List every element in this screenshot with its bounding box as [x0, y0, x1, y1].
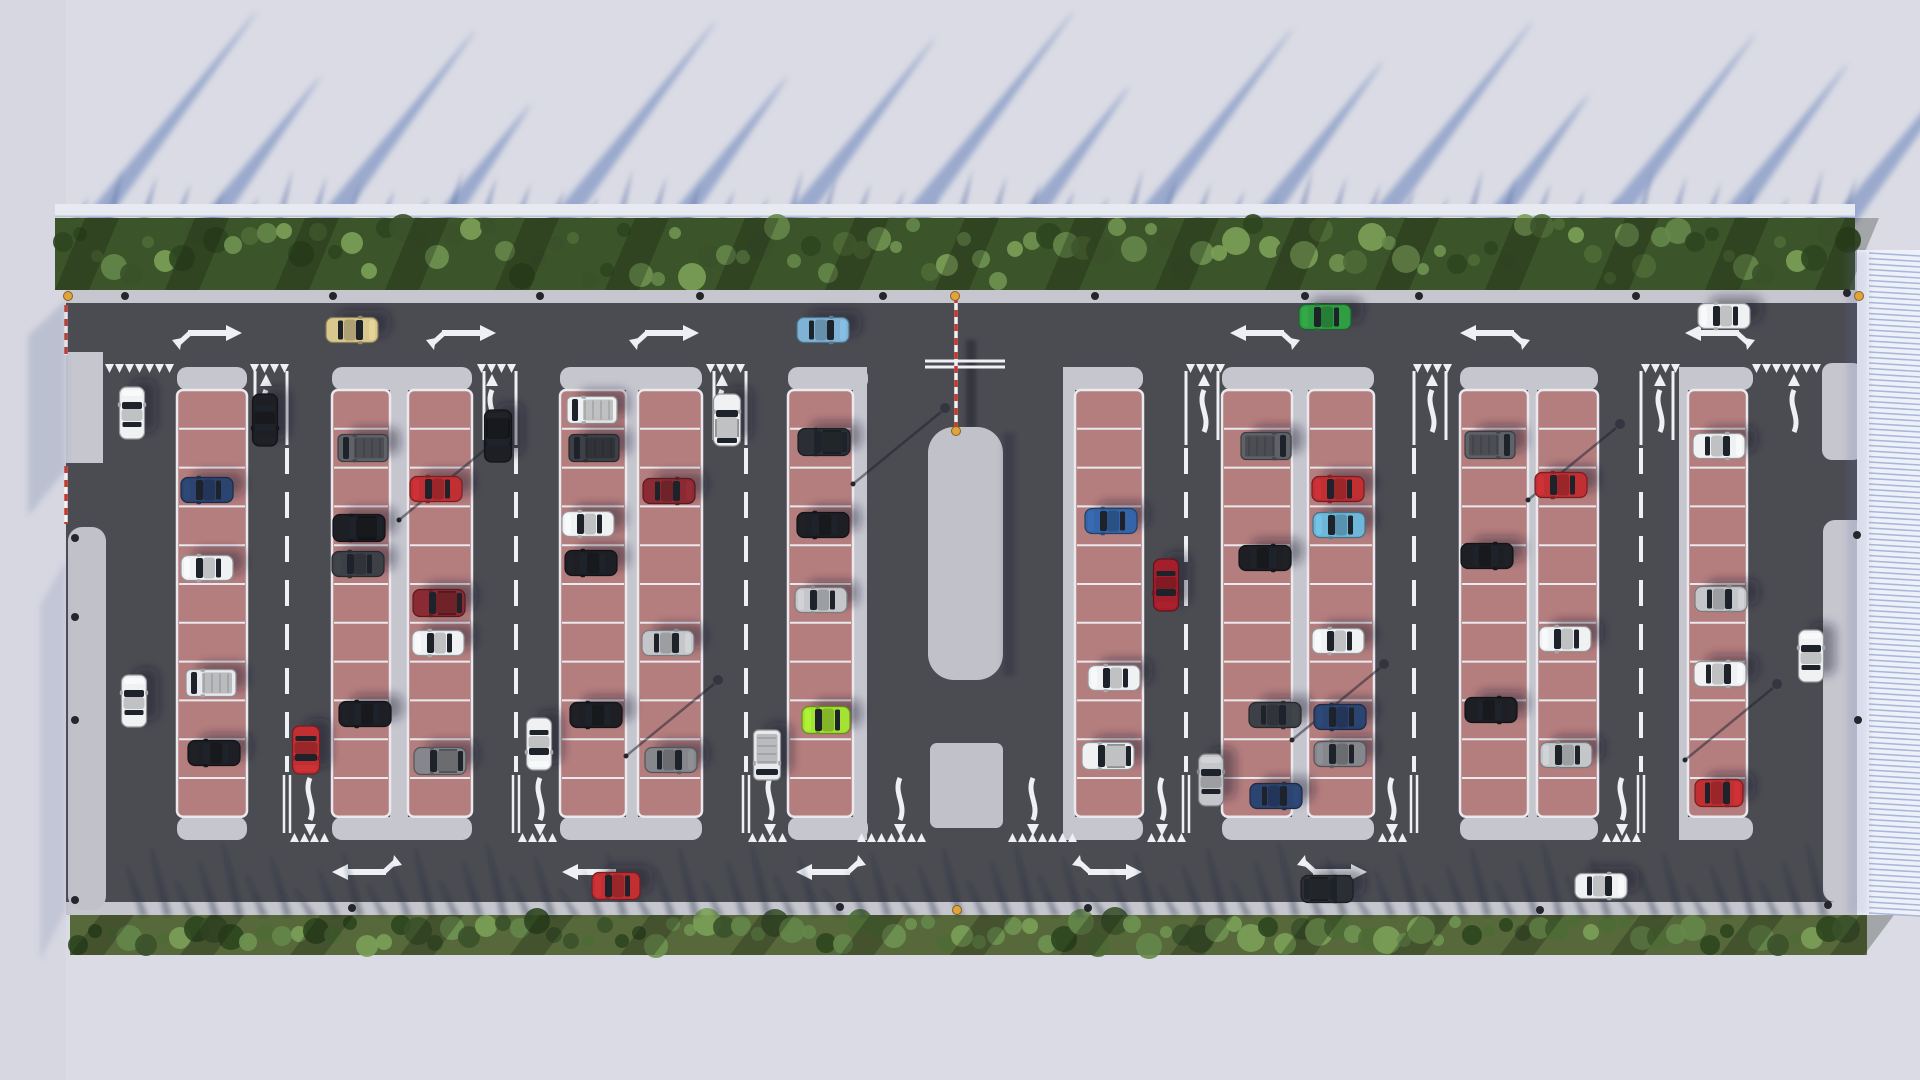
car-windshield — [1495, 700, 1502, 720]
parked-car — [1301, 875, 1353, 903]
car-windshield — [349, 517, 356, 539]
hood-highlight — [1316, 515, 1322, 535]
rear-glass — [216, 481, 221, 500]
car-roof — [1801, 652, 1822, 664]
car-roof — [361, 704, 373, 725]
car-mirror — [606, 897, 611, 900]
rear-glass — [338, 321, 343, 340]
lamp-shadow-head — [1615, 419, 1625, 429]
car-roof — [203, 558, 215, 579]
car-mirror — [348, 575, 353, 578]
foliage-blob — [1801, 245, 1827, 271]
rear-glass — [1304, 879, 1309, 899]
car-windshield — [1723, 782, 1730, 804]
foliage-blob — [651, 272, 665, 286]
moving-car — [292, 726, 320, 774]
lamp-base — [624, 754, 629, 759]
car-mirror — [753, 761, 756, 766]
car-windshield — [1554, 629, 1561, 649]
car-windshield — [1314, 307, 1321, 327]
car-mirror — [1551, 496, 1556, 499]
parked-car — [1698, 302, 1750, 330]
foliage-blob — [120, 263, 142, 285]
car-mirror — [1496, 456, 1501, 459]
lamp-shadow-head — [713, 675, 723, 685]
foliage-blob — [597, 917, 613, 933]
hood-highlight — [1091, 668, 1097, 688]
parked-car — [413, 589, 465, 617]
lamp-base — [1290, 738, 1295, 743]
van-windshield — [756, 769, 778, 775]
car-mirror — [204, 739, 209, 742]
hood-highlight — [122, 390, 142, 396]
car-windshield — [675, 750, 682, 770]
hood-highlight — [568, 553, 574, 573]
suv-roof — [437, 751, 459, 772]
parked-car — [798, 428, 850, 456]
rear-glass — [1477, 701, 1482, 720]
car-windshield — [430, 750, 437, 772]
car-windshield — [1724, 664, 1731, 684]
car-mirror — [677, 746, 682, 749]
car-windshield — [810, 590, 817, 610]
hood-highlight — [342, 704, 348, 724]
car-roof — [1562, 745, 1574, 766]
moving-car — [1152, 559, 1180, 611]
car-mirror — [430, 747, 435, 750]
moving-car — [713, 394, 741, 446]
car-mirror — [430, 772, 435, 775]
car-windshield — [1723, 436, 1730, 456]
foliage-blob — [1680, 915, 1706, 941]
suv-roof — [821, 432, 843, 453]
parked-car — [565, 549, 617, 577]
parked-car — [1535, 471, 1587, 499]
bollard — [71, 896, 79, 904]
parked-car — [1465, 696, 1517, 724]
foliage-blob — [480, 218, 496, 234]
foliage-blob — [1789, 933, 1801, 945]
amber-marker — [1855, 292, 1864, 301]
van-windshield — [191, 672, 197, 694]
car-mirror — [143, 403, 146, 408]
rear-glass — [1261, 706, 1266, 725]
car-mirror — [509, 442, 512, 447]
car-mirror — [317, 756, 320, 761]
hood-highlight — [1201, 757, 1221, 763]
hood-highlight — [255, 437, 275, 443]
hood-highlight — [1508, 700, 1514, 720]
foliage-blob — [1483, 925, 1495, 937]
rear-glass — [1706, 665, 1711, 684]
parked-car — [332, 550, 384, 578]
foliage-blob — [460, 218, 482, 240]
parked-car — [797, 316, 849, 344]
car-mirror — [811, 586, 816, 589]
hood-highlight — [1736, 436, 1742, 456]
car-roof — [663, 750, 675, 771]
car-roof — [354, 554, 366, 575]
foliage-blob — [341, 232, 363, 254]
hood-highlight — [1282, 548, 1288, 568]
car-windshield — [1329, 707, 1336, 727]
foliage-blob — [1599, 916, 1617, 934]
car-windshield — [1605, 876, 1612, 896]
parked-car — [326, 316, 378, 344]
parked-car — [188, 739, 240, 767]
parked-car — [1313, 511, 1365, 539]
car-windshield — [529, 748, 549, 755]
car-mirror — [426, 475, 431, 478]
car-mirror — [429, 589, 434, 592]
car-mirror — [1177, 591, 1180, 596]
foliage-blob — [239, 933, 257, 951]
stall-cap-top — [332, 367, 472, 390]
car-windshield — [1329, 744, 1336, 764]
car-mirror — [1725, 779, 1730, 782]
scene-canvas — [0, 0, 1920, 1080]
stall-cap-bottom — [560, 817, 702, 840]
foliage-blob — [376, 934, 392, 950]
car-windshield — [1328, 515, 1335, 535]
car-mirror — [1555, 625, 1560, 628]
parked-car — [1312, 475, 1364, 503]
rear-glass — [1473, 547, 1478, 566]
rear-glass — [657, 751, 662, 770]
parked-car — [1241, 432, 1291, 460]
car-mirror — [426, 500, 431, 503]
car-roof — [1483, 700, 1495, 721]
parked-car — [339, 700, 391, 728]
stall-cap-top — [788, 367, 868, 390]
bollard — [1084, 904, 1092, 912]
hood-highlight — [1504, 546, 1510, 566]
car-mirror — [1330, 728, 1335, 731]
foliage-blob — [1123, 915, 1141, 933]
car-mirror — [738, 410, 741, 415]
left-sidewalk — [66, 352, 103, 463]
stall-cap-bottom — [1063, 817, 1143, 840]
rear-glass — [1570, 476, 1575, 495]
rear-glass — [1349, 708, 1354, 727]
parked-car — [1314, 740, 1366, 768]
car-mirror — [584, 459, 589, 462]
roof-rail — [823, 430, 841, 432]
moving-car — [484, 410, 512, 462]
roof-rail — [358, 538, 376, 540]
foliage-blob — [787, 254, 801, 268]
roof-rail — [1310, 899, 1328, 901]
parked-car — [181, 554, 233, 582]
hood-highlight — [295, 765, 317, 771]
car-roof — [124, 697, 145, 709]
foliage-blob — [1700, 935, 1720, 955]
car-windshield — [1280, 786, 1287, 806]
rear-glass — [1349, 745, 1354, 764]
hood-highlight — [840, 320, 846, 340]
foliage-blob — [1121, 236, 1147, 262]
foliage-blob — [1358, 223, 1386, 251]
foliage-blob — [53, 232, 73, 252]
car-roof — [295, 742, 318, 754]
parked-car — [1695, 585, 1747, 613]
car-windshield — [1330, 878, 1337, 900]
car-mirror — [586, 726, 591, 729]
car-windshield — [1327, 631, 1334, 651]
parked-car — [1082, 742, 1134, 770]
car-mirror — [675, 502, 680, 505]
hood-highlight — [1317, 707, 1323, 727]
parked-car — [570, 701, 622, 729]
hood-highlight — [191, 743, 197, 763]
car-mirror — [1281, 726, 1286, 729]
car-mirror — [606, 872, 611, 875]
roof-rail — [438, 613, 456, 615]
rear-glass — [1587, 877, 1592, 896]
car-mirror — [582, 421, 587, 424]
bollard — [121, 292, 129, 300]
car-mirror — [1282, 807, 1287, 810]
parked-car — [1694, 660, 1746, 688]
rear-glass — [123, 422, 142, 427]
rear-glass — [125, 710, 144, 715]
rear-glass — [1202, 789, 1221, 794]
aerial-parking-lot-render — [0, 0, 1920, 1080]
car-mirror — [1727, 585, 1732, 588]
parked-car — [1575, 872, 1627, 900]
car-roof — [1257, 548, 1269, 569]
car-roof — [1336, 744, 1348, 765]
rear-glass — [1705, 437, 1710, 456]
foliage-blob — [135, 934, 157, 956]
parked-car — [802, 706, 850, 734]
car-mirror — [816, 706, 821, 709]
car-mirror — [584, 434, 589, 437]
foliage-blob — [582, 935, 594, 947]
car-mirror — [276, 426, 279, 431]
car-roof — [612, 875, 624, 898]
parked-car — [1539, 625, 1591, 653]
rear-glass — [600, 554, 605, 573]
foliage-blob — [1685, 232, 1705, 252]
rear-glass — [1126, 746, 1131, 766]
bollard — [1301, 292, 1309, 300]
moving-car — [251, 394, 279, 446]
rear-glass — [830, 591, 835, 610]
car-mirror — [814, 428, 819, 431]
rear-glass — [1574, 630, 1579, 649]
car-mirror — [582, 396, 587, 399]
foliage-blob — [495, 915, 511, 931]
car-roof — [434, 633, 446, 654]
car-mirror — [197, 476, 202, 479]
hood-highlight — [1734, 782, 1740, 804]
car-windshield — [1550, 475, 1557, 495]
bollard — [71, 716, 79, 724]
stall-cap-top — [1222, 367, 1374, 390]
parked-car — [797, 511, 849, 539]
bollard — [1536, 906, 1544, 914]
parked-car — [1250, 782, 1302, 810]
car-mirror — [355, 725, 360, 728]
car-roof — [1267, 705, 1279, 726]
car-windshield — [354, 704, 361, 724]
rear-glass — [1157, 571, 1176, 576]
car-roof — [1201, 776, 1222, 788]
bollard — [1824, 901, 1832, 909]
parked-car — [1540, 741, 1592, 769]
left-street-shade — [40, 560, 66, 960]
car-roof — [1321, 307, 1333, 328]
car-mirror — [428, 629, 433, 632]
stall-cap-top — [177, 367, 247, 390]
foliage-blob — [241, 227, 259, 245]
lamp-base — [851, 482, 856, 487]
rear-glass — [654, 634, 659, 653]
parked-car — [333, 514, 385, 542]
foliage-blob — [1553, 218, 1565, 230]
hood-highlight — [1801, 633, 1821, 639]
car-mirror — [1493, 542, 1498, 545]
foliage-blob — [1484, 241, 1498, 255]
car-roof — [1712, 664, 1724, 685]
hood-highlight — [1315, 479, 1321, 499]
rear-glass — [1251, 549, 1256, 568]
car-mirror — [1152, 591, 1155, 596]
car-mirror — [358, 316, 363, 319]
car-windshield — [203, 743, 210, 763]
island-edge-shadow — [1003, 433, 1015, 676]
car-roof — [1557, 475, 1569, 496]
roof-rail — [358, 516, 376, 518]
rear-glass — [374, 705, 379, 724]
stall-cap-top — [1460, 367, 1598, 390]
car-mirror — [1497, 696, 1502, 699]
car-mirror — [550, 750, 553, 755]
hood-highlight — [565, 514, 571, 534]
car-windshield — [124, 690, 144, 697]
rear-glass — [1123, 669, 1128, 688]
hood-highlight — [686, 481, 692, 501]
car-mirror — [1098, 742, 1103, 745]
car-windshield — [1491, 546, 1498, 566]
rear-glass — [1348, 516, 1353, 535]
car-roof — [203, 480, 215, 501]
car-windshield — [1555, 745, 1562, 765]
car-mirror — [1727, 610, 1732, 613]
car-mirror — [1714, 327, 1719, 330]
car-mirror — [1271, 544, 1276, 547]
rear-glass — [530, 730, 549, 735]
car-mirror — [578, 510, 583, 513]
car-windshield — [580, 553, 587, 573]
stall-cap-bottom — [177, 817, 247, 840]
rear-glass — [296, 736, 317, 741]
rear-glass — [488, 413, 508, 418]
rear-glass — [216, 559, 221, 578]
car-mirror — [1328, 500, 1333, 503]
car-roof — [815, 320, 827, 341]
foliage-blob — [816, 933, 836, 953]
car-roof — [255, 412, 276, 424]
bollard — [1854, 716, 1862, 724]
foliage-blob — [272, 926, 292, 946]
rear-glass — [445, 480, 450, 499]
rear-glass — [655, 482, 660, 501]
car-mirror — [353, 434, 358, 437]
car-mirror — [201, 694, 206, 697]
car-mirror — [428, 654, 433, 657]
foliage-blob — [567, 232, 579, 244]
center-island — [928, 427, 1003, 680]
rear-glass — [223, 744, 228, 763]
car-windshield — [1103, 668, 1110, 688]
parked-car — [1314, 703, 1366, 731]
roof-rail — [737, 419, 739, 437]
rear-glass — [1334, 308, 1339, 327]
car-windshield — [1269, 548, 1276, 568]
car-roof — [1334, 479, 1346, 500]
stall-cap-bottom — [1679, 817, 1753, 840]
moving-car — [118, 387, 146, 439]
car-roof — [1593, 876, 1605, 897]
foliage-blob — [1619, 917, 1631, 929]
car-mirror — [145, 691, 148, 696]
hood-highlight — [1293, 786, 1299, 806]
stall-cap-bottom — [1460, 817, 1598, 840]
bollard — [836, 903, 844, 911]
hood-highlight — [1543, 745, 1549, 765]
parked-car — [1695, 779, 1743, 807]
hood-highlight — [595, 875, 601, 897]
bollard — [1843, 289, 1851, 297]
moving-car — [1197, 754, 1225, 806]
parked-car — [181, 476, 233, 504]
car-mirror — [1328, 652, 1333, 655]
car-mirror — [811, 611, 816, 614]
car-mirror — [118, 403, 121, 408]
foliage-blob — [142, 236, 154, 248]
car-windshield — [487, 439, 509, 446]
car-roof — [1479, 546, 1491, 567]
car-windshield — [814, 431, 821, 453]
car-mirror — [1555, 650, 1560, 653]
car-mirror — [1272, 457, 1277, 460]
foliage-blob — [1136, 933, 1162, 959]
foliage-blob — [802, 925, 816, 939]
car-windshield — [425, 479, 432, 499]
hood-highlight — [800, 515, 806, 535]
bollard — [696, 292, 704, 300]
van-windshield — [1280, 435, 1286, 457]
foliage-blob — [475, 915, 497, 937]
car-mirror — [586, 701, 591, 704]
rear-glass — [605, 706, 610, 725]
car-mirror — [197, 501, 202, 504]
rear-glass — [835, 710, 840, 731]
structure-shadow — [1847, 250, 1869, 915]
car-mirror — [1328, 627, 1333, 630]
hood-highlight — [415, 633, 421, 653]
car-mirror — [829, 316, 834, 319]
car-windshield — [716, 410, 738, 417]
rear-glass — [809, 321, 814, 340]
car-mirror — [1101, 532, 1106, 535]
car-roof — [1156, 577, 1177, 589]
car-mirror — [1822, 646, 1825, 651]
car-roof — [1720, 306, 1732, 327]
car-mirror — [1282, 782, 1287, 785]
